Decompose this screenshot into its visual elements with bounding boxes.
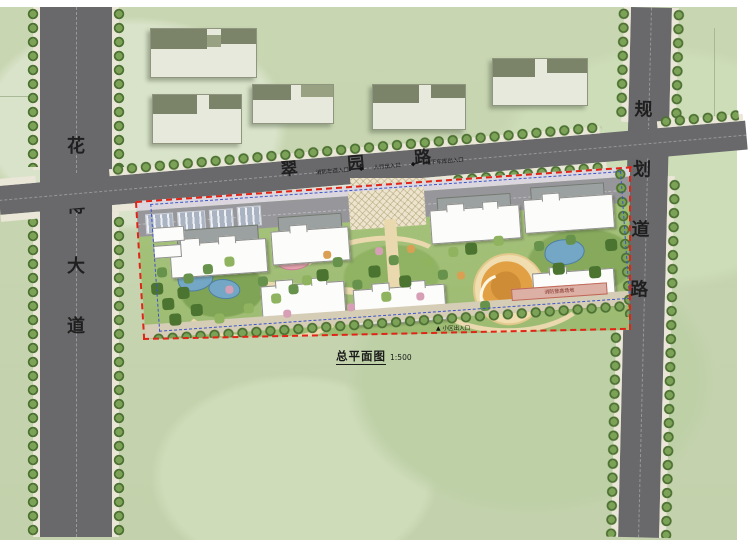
street-trees: [112, 215, 126, 537]
building-roof: [301, 85, 333, 97]
road-name-char: 划: [633, 161, 651, 179]
building-roof: [373, 85, 419, 103]
building-roof: [547, 59, 587, 73]
building-roof: [153, 95, 197, 114]
street-trees: [669, 8, 686, 120]
title-text: 总平面图: [336, 349, 386, 365]
road-name-char: 花: [67, 138, 85, 156]
building-roof: [209, 95, 241, 109]
drawing-title: 总平面图1:500: [336, 348, 412, 364]
existing-building: [492, 58, 588, 106]
building-roof: [207, 35, 221, 47]
existing-building: [252, 84, 334, 124]
building-roof: [253, 85, 291, 100]
road-name-char: 大: [67, 258, 85, 276]
street-trees: [26, 7, 40, 167]
street-trees: [112, 7, 126, 167]
street-trees: [614, 7, 631, 119]
entrance-marker-icon: ◆: [359, 166, 364, 172]
building-roof: [221, 29, 256, 44]
building-roof: [431, 85, 465, 98]
road-name-char: 道: [631, 221, 649, 239]
entrance-marker-icon: ◆: [411, 162, 416, 168]
existing-building: [372, 84, 466, 130]
south-entrance-label: 小区出入口: [443, 326, 471, 332]
building-roof: [493, 59, 535, 77]
road-name-char: 翠: [280, 161, 298, 179]
road-name-char: 路: [630, 281, 648, 299]
existing-building: [152, 94, 242, 144]
road-name-char: 规: [634, 101, 652, 119]
road-name-west: 花 博 大 道: [67, 138, 85, 336]
title-scale: 1:500: [390, 353, 412, 362]
road-west: 花 博 大 道: [40, 7, 112, 537]
south-entrance-icon: ▲: [436, 326, 441, 332]
existing-building: [150, 28, 257, 78]
street-trees: [26, 215, 40, 537]
south-entrance: ▲ 小区出入口: [436, 326, 470, 332]
building-roof: [151, 29, 207, 49]
site-plan-canvas: 花 博 大 道 规 划 道 路: [0, 0, 750, 560]
road-name-char: 道: [67, 318, 85, 336]
site-boundary-east: [629, 166, 631, 330]
